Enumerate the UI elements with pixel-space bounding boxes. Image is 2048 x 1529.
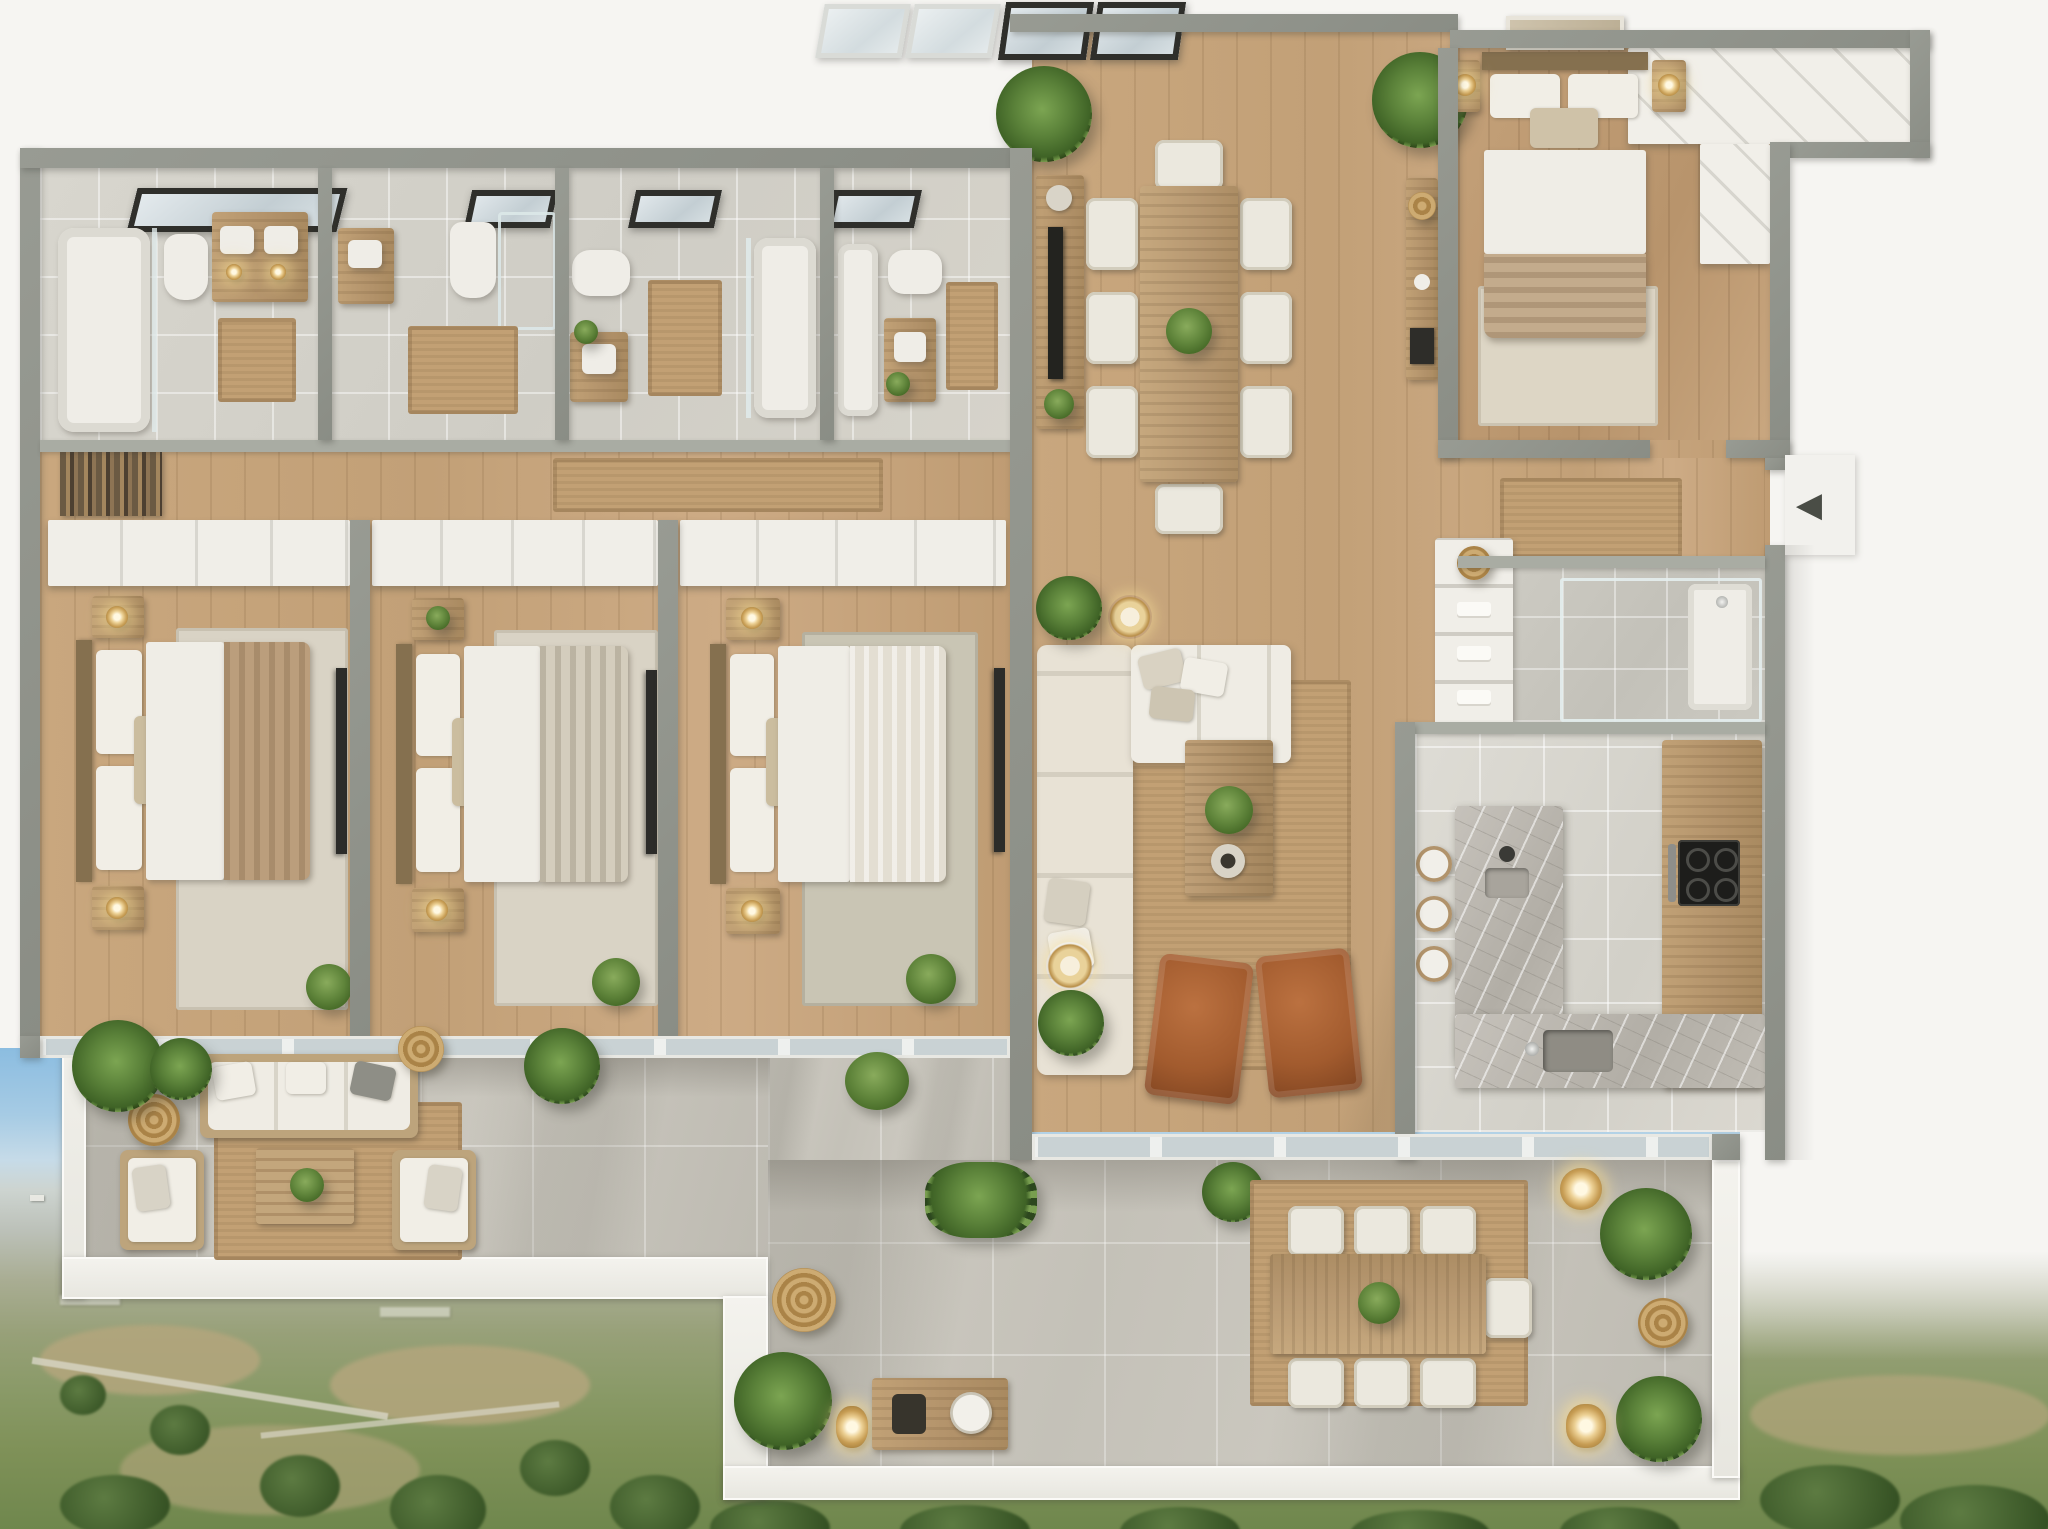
master-wardrobe-side <box>1700 144 1770 264</box>
wall-bath2-bath3 <box>555 168 569 440</box>
tv-sideboard <box>1036 175 1084 429</box>
outer-wall-living-right-upper <box>1765 458 1785 470</box>
headboard <box>1482 52 1648 70</box>
terrace-potted-palm <box>1616 1376 1702 1462</box>
dining-chair <box>1086 198 1138 270</box>
bed-sheet <box>464 646 540 882</box>
bar-stool <box>1416 896 1452 932</box>
tree <box>1120 1507 1240 1529</box>
round-tray <box>1211 844 1245 878</box>
wall-bathrooms-bottom <box>40 440 1010 452</box>
shower-glass-bath1 <box>152 228 157 432</box>
dining-chair-head <box>1155 140 1223 190</box>
tree <box>900 1505 1030 1529</box>
terrace-bench <box>872 1378 1008 1450</box>
tv-bed3 <box>994 668 1005 852</box>
corridor-runner-rug <box>553 458 883 512</box>
wardrobe-bed3 <box>680 520 1006 586</box>
wall-bed1-bed2 <box>350 520 370 1038</box>
wall-master-bottom-a <box>1438 440 1650 458</box>
decor-frames <box>1410 328 1434 364</box>
wall-closet-bottom <box>1790 142 1930 158</box>
woven-tray <box>1408 192 1436 220</box>
kitchen-sink <box>1543 1030 1613 1072</box>
outdoor-armchair <box>120 1150 204 1250</box>
bathtub-bath3 <box>754 238 816 418</box>
woven-pendant <box>398 1026 444 1072</box>
nightstand <box>726 888 780 934</box>
skylight-bath3 <box>628 190 722 228</box>
terrace-lantern <box>836 1406 868 1448</box>
terrace-lantern <box>1566 1404 1606 1448</box>
skylight-bath4 <box>826 190 922 228</box>
headboard <box>396 644 412 884</box>
terrace-dining-chair <box>1288 1358 1344 1408</box>
outdoor-pillow <box>286 1062 326 1094</box>
coffee-table <box>1185 740 1273 896</box>
tree <box>710 1500 830 1529</box>
outdoor-pillow <box>211 1061 256 1101</box>
burner <box>1686 878 1710 902</box>
terrace-lantern <box>1560 1168 1602 1210</box>
nightstand-plant <box>426 606 450 630</box>
woven-pouf <box>1638 1298 1688 1348</box>
tree <box>1560 1507 1680 1529</box>
terrace-parapet-bottom <box>723 1466 1740 1500</box>
burner <box>1686 848 1710 872</box>
bathmat-bath3 <box>648 280 722 396</box>
kitchen-counter-bottom <box>1455 1014 1765 1088</box>
console-sideboard <box>1406 178 1438 380</box>
dining-chair-head <box>1155 484 1223 534</box>
tree <box>1900 1485 2048 1529</box>
burner <box>1714 848 1738 872</box>
terrace-dining-chair <box>1288 1206 1344 1256</box>
wall-bed2-bed3 <box>658 520 678 1038</box>
stacked-dishes <box>1457 646 1491 660</box>
plant-bed2 <box>592 958 640 1006</box>
wall-master-left <box>1438 48 1458 458</box>
leather-armchair <box>1144 953 1255 1105</box>
stacked-dishes <box>1457 690 1491 704</box>
wall-shower-kitchen <box>1415 722 1765 734</box>
nightstand <box>412 888 464 932</box>
terrace-dining-chair-head <box>1484 1278 1532 1338</box>
cooktop <box>1678 840 1740 906</box>
nightstand <box>92 886 144 930</box>
vase-decor <box>1046 185 1072 211</box>
woven-pouf <box>772 1268 836 1332</box>
oven-handle <box>1668 844 1676 902</box>
bed-1 <box>76 640 310 882</box>
floor-lamp-ring <box>1046 942 1094 990</box>
tree <box>260 1455 340 1517</box>
nightstand <box>726 598 780 640</box>
vanity-plant <box>886 372 910 396</box>
bed-blanket <box>540 646 628 882</box>
vanity-plant <box>574 320 598 344</box>
distant-house <box>30 1195 44 1201</box>
outdoor-pillow <box>131 1164 171 1212</box>
sideboard-plant <box>1044 389 1074 419</box>
wall-hall-shower <box>1458 556 1765 568</box>
slatted-coffee-table <box>256 1148 354 1224</box>
gold-decor <box>270 264 286 280</box>
bed-sheet <box>778 646 850 882</box>
bed-3 <box>710 644 946 884</box>
wall-kitchen-living <box>1395 722 1415 1160</box>
dining-chair <box>1240 198 1292 270</box>
table-lamp <box>106 897 128 919</box>
sink-basin <box>348 240 382 268</box>
table-centerpiece-plant <box>1358 1282 1400 1324</box>
terrace-palm <box>524 1028 600 1104</box>
coffee-table-plant <box>1205 786 1253 834</box>
vanity-bath4 <box>884 318 936 402</box>
shower-glass-bath3 <box>746 238 751 418</box>
outer-wall-master-top <box>1450 30 1930 48</box>
vanity-bath3 <box>570 332 628 402</box>
leather-armchair <box>1255 947 1363 1098</box>
bench-decor-dark <box>892 1394 926 1434</box>
outer-wall-top-left-block <box>20 148 1010 168</box>
sink-basin <box>264 226 298 254</box>
vanity-bath1 <box>212 212 308 302</box>
shower-glass-bath2 <box>498 212 556 330</box>
table-lamp <box>426 899 448 921</box>
terrace-dining-chair <box>1354 1358 1410 1408</box>
table-lamp <box>741 607 763 629</box>
tv-bed1 <box>336 668 347 854</box>
stacked-dishes <box>1457 602 1491 616</box>
floor-plan-render: ◀ <box>0 0 2048 1529</box>
tv-on-sideboard <box>1048 227 1063 379</box>
outer-wall-left <box>20 148 40 1038</box>
terrace-palm <box>734 1352 832 1450</box>
tree <box>60 1475 170 1529</box>
vanity-bath2 <box>338 228 394 304</box>
sink-basin <box>220 226 254 254</box>
nightstand <box>412 598 464 640</box>
wall-bed3-living <box>1010 148 1032 1160</box>
terrace-dining-chair <box>1354 1206 1410 1256</box>
skylight-canopy <box>815 4 911 58</box>
bed-blanket <box>850 646 946 882</box>
toilet-bath2 <box>450 222 496 298</box>
bed-blanket <box>224 642 310 880</box>
skylight-canopy <box>905 4 1001 58</box>
plant-living-top <box>1036 576 1102 640</box>
tree <box>1760 1465 1900 1529</box>
headboard <box>76 640 92 882</box>
wall-bath1-bath2 <box>318 168 332 440</box>
toilet-bath1 <box>164 234 208 300</box>
terrace-parapet-right <box>1712 1160 1740 1478</box>
plant-bed1 <box>306 964 352 1010</box>
tree <box>150 1405 210 1455</box>
hall-runner-rug <box>1500 478 1682 558</box>
gold-decor <box>226 264 242 280</box>
dining-table <box>1140 186 1238 482</box>
wall-master-right <box>1770 142 1790 462</box>
outdoor-armchair <box>392 1150 476 1250</box>
table-centerpiece-plant <box>1166 308 1212 354</box>
master-bed <box>1482 52 1648 338</box>
island-faucet <box>1499 846 1515 862</box>
tv-bed2 <box>646 670 657 854</box>
bench-round-plate <box>950 1392 992 1434</box>
bathtub-bath1 <box>58 228 150 432</box>
island-sink <box>1485 868 1529 898</box>
bed-2 <box>396 644 628 884</box>
dining-chair <box>1086 386 1138 458</box>
sink-basin <box>894 332 926 362</box>
bathmat-bath2 <box>408 326 518 414</box>
bar-stool <box>1416 946 1452 982</box>
bed-sheet <box>1484 150 1646 254</box>
tree <box>520 1440 590 1496</box>
shower-head-chrome <box>1716 596 1728 608</box>
tree <box>60 1375 106 1415</box>
bookshelf <box>60 452 162 516</box>
terrace-dining-chair <box>1420 1206 1476 1256</box>
outdoor-pillow <box>423 1164 463 1212</box>
outer-wall-master-right <box>1910 30 1930 158</box>
tree <box>1350 1510 1490 1529</box>
terrace-dining-chair <box>1420 1358 1476 1408</box>
table-plant <box>290 1168 324 1202</box>
wardrobe-bed1 <box>48 520 350 586</box>
bed-blanket <box>1484 254 1646 338</box>
dining-chair <box>1086 292 1138 364</box>
bed-sheet <box>146 642 224 880</box>
bathmat-bath4 <box>946 282 998 390</box>
wall-corner-terrace-right <box>1712 1134 1740 1160</box>
burner <box>1714 878 1738 902</box>
distant-village <box>380 1307 450 1317</box>
sofa-pillow <box>1043 877 1091 926</box>
toilet-bath3 <box>572 250 630 296</box>
wall-bath3-bath4 <box>820 168 834 440</box>
sink-basin <box>582 344 616 374</box>
wardrobe-bed2 <box>372 520 658 586</box>
terrace-parapet-lounge-bottom <box>62 1257 768 1299</box>
table-lamp <box>106 606 128 628</box>
plant-living-bottom <box>1038 990 1104 1056</box>
table-lamp <box>741 900 763 922</box>
entry-arrow: ◀ <box>1788 484 1830 526</box>
nightstand <box>92 596 144 638</box>
table-lamp <box>1658 74 1680 96</box>
terrace-palm <box>1600 1188 1692 1280</box>
terrace-dining-table <box>1270 1254 1486 1354</box>
nightstand-master <box>1652 60 1686 112</box>
wall-corner-bottom-left <box>20 1036 40 1058</box>
floor-lamp-ring <box>1108 595 1152 639</box>
terrace-palm <box>150 1038 212 1100</box>
sofa-pillow <box>1148 686 1195 722</box>
toilet-bath4 <box>888 250 942 294</box>
kitchen-faucet-chrome <box>1525 1042 1539 1056</box>
outer-wall-living-right <box>1765 545 1785 1160</box>
headboard <box>710 644 726 884</box>
plant-bed3 <box>906 954 956 1004</box>
outdoor-sofa <box>200 1054 418 1138</box>
decor-dish <box>1414 274 1430 290</box>
tree <box>610 1475 700 1529</box>
bar-stool <box>1416 846 1452 882</box>
hazy-field <box>1750 1375 2048 1455</box>
terrace-bush-living-doors <box>925 1162 1037 1238</box>
wall-master-bottom-b <box>1726 440 1790 458</box>
outer-wall-dining-top <box>1010 14 1458 32</box>
living-terrace-sliding-doors <box>1032 1134 1712 1160</box>
bathmat-bath1 <box>218 318 296 402</box>
bathtub-bath4 <box>838 244 878 416</box>
accent-pillow <box>1530 108 1598 148</box>
terrace-tree <box>845 1052 909 1110</box>
